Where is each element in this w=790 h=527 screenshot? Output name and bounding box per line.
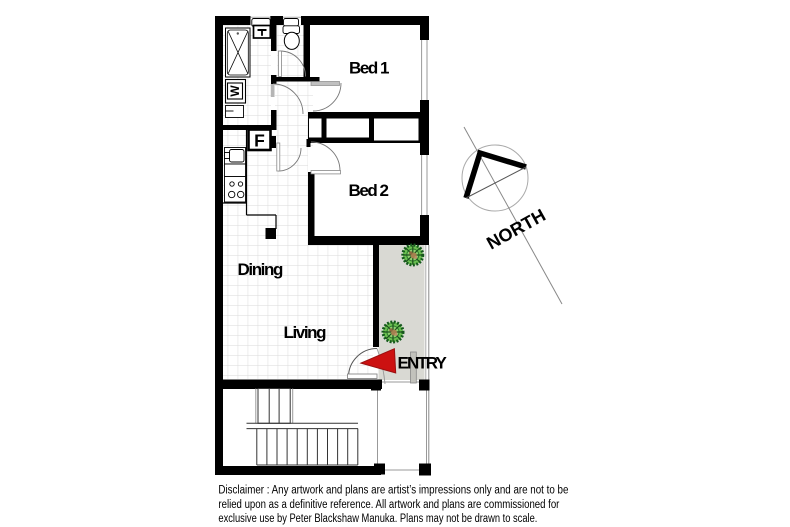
svg-text:NORTH: NORTH — [483, 205, 549, 254]
svg-text:Bed 2: Bed 2 — [349, 181, 389, 200]
svg-text:Dining: Dining — [238, 260, 283, 279]
svg-text:exclusive use by Peter Blacksh: exclusive use by Peter Blackshaw Manuka.… — [218, 513, 537, 525]
svg-text:Living: Living — [284, 323, 327, 342]
svg-text:W: W — [228, 85, 242, 97]
svg-text:ENTRY: ENTRY — [398, 354, 448, 373]
svg-text:F: F — [254, 131, 265, 151]
svg-text:Disclaimer : Any artwork and p: Disclaimer : Any artwork and plans are a… — [218, 485, 568, 497]
svg-text:Bed 1: Bed 1 — [349, 58, 389, 77]
svg-text:relied upon as a definitive re: relied upon as a definitive reference. A… — [218, 499, 559, 511]
